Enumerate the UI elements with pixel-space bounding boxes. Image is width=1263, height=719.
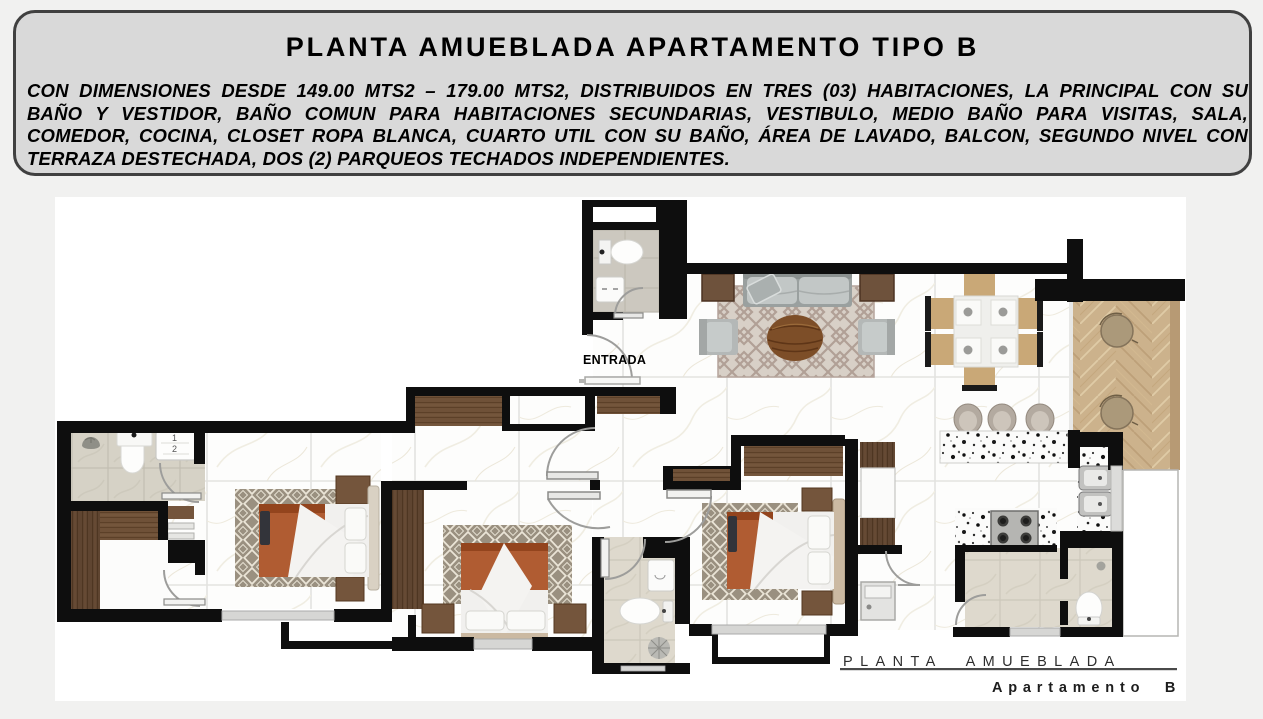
svg-text:ENTRADA: ENTRADA bbox=[583, 353, 646, 367]
svg-text:PLANTA AMUEBLADA: PLANTA AMUEBLADA bbox=[843, 654, 1122, 670]
svg-text:1: 1 bbox=[172, 433, 177, 443]
svg-text:Apartamento B: Apartamento B bbox=[992, 680, 1181, 696]
svg-text:2: 2 bbox=[172, 444, 177, 454]
